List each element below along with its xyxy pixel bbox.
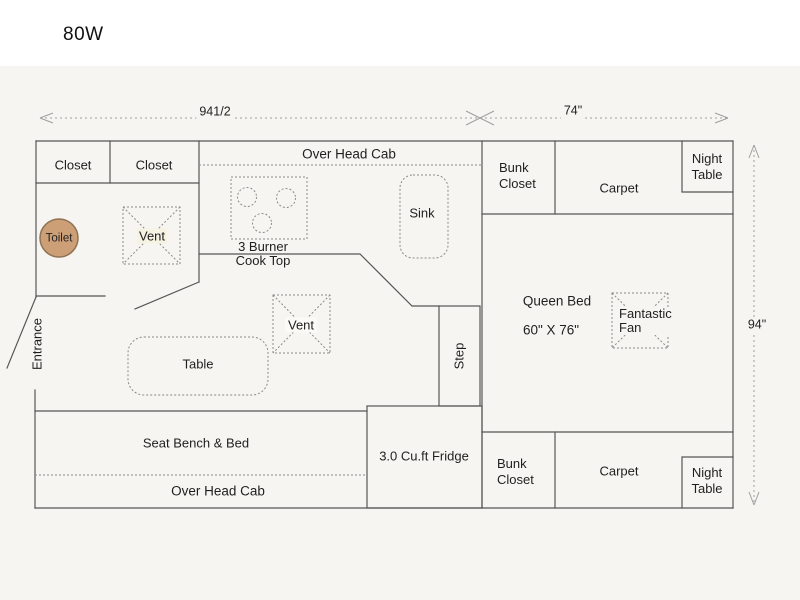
carpet-top-label: Carpet [599,181,638,196]
night-table-bottom-label: Night Table [691,465,722,497]
night-top-line1: Night [691,151,722,167]
fan-line1: Fantastic [619,307,672,321]
vent-dinette-label: Vent [285,318,317,333]
dimension-right: 94" [745,318,769,333]
bunk-bottom-line2: Closet [497,472,534,488]
carpet-bottom-label: Carpet [599,464,638,479]
seat-bench-label: Seat Bench & Bed [143,436,249,451]
dimension-top-left: 941/2 [196,105,233,120]
cooktop-label-line2: Cook Top [236,254,291,268]
vent-galley-label: Vent [137,229,167,244]
cooktop-label: 3 Burner Cook Top [236,240,291,268]
bunk-closet-bottom-label: Bunk Closet [497,456,534,488]
arrow-down-icon [749,492,759,505]
bunk-top-line1: Bunk [499,160,536,176]
table-label: Table [182,357,213,372]
bunk-top-line2: Closet [499,176,536,192]
fan-line2: Fan [619,321,672,335]
burner-icon [277,189,296,208]
burner-icon [253,214,272,233]
sink-label: Sink [409,206,434,221]
night-bottom-line2: Table [691,481,722,497]
floor-plan: 80W 941/2 74" 94" Closet Closet Over Hea… [0,0,800,600]
overhead-cab-top-label: Over Head Cab [302,147,396,162]
bunk-bottom-line1: Bunk [497,456,534,472]
step-label: Step [452,343,467,370]
queen-bed-size-label: 60" X 76" [523,323,579,338]
night-table-top-label: Night Table [691,151,722,183]
bunk-closet-top-label: Bunk Closet [499,160,536,192]
cooktop-label-line1: 3 Burner [236,240,291,254]
bath-angled-wall [135,282,199,309]
overhead-cab-bottom-label: Over Head Cab [171,484,265,499]
night-top-line2: Table [691,167,722,183]
cooktop-icon [231,177,307,239]
closet-left-label: Closet [55,158,92,173]
queen-bed-label: Queen Bed [523,294,591,309]
floor-plan-drawing [0,0,800,600]
fridge-label: 3.0 Cu.ft Fridge [379,449,469,464]
cooktop-outline [231,177,307,239]
night-bottom-line1: Night [691,465,722,481]
closet-right-label: Closet [136,158,173,173]
fantastic-fan-label: Fantastic Fan [617,307,674,335]
plan-title: 80W [63,24,104,46]
burner-icon [238,188,257,207]
dimension-top-right: 74" [561,104,585,119]
entrance-label: Entrance [30,318,45,370]
toilet-label: Toilet [46,232,73,247]
